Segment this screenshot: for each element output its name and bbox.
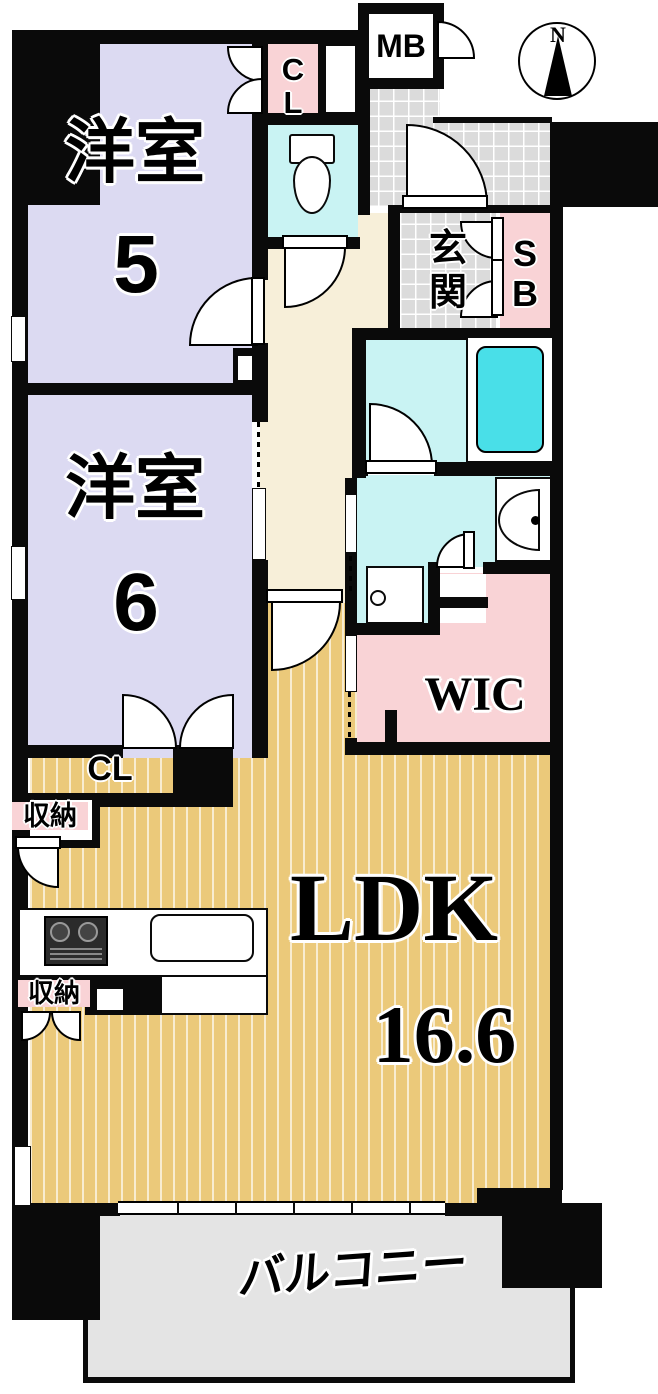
floor-plan: N 洋室 5 洋室 6 LDK 16.6 バルコニー 玄関 SB CL CL M… [0, 0, 658, 1394]
door-arc-closet-top-b [228, 79, 262, 113]
meter-box-label: MB [372, 28, 430, 65]
room6-name-label: 洋室 [50, 452, 220, 526]
door-arc-entry [407, 125, 487, 205]
door-leaf-ldk [267, 590, 342, 602]
door-arc-storage2-b [52, 1012, 80, 1040]
storage2-label: 収納 [18, 980, 90, 1007]
door-arc-meter-box [438, 22, 474, 58]
door-leaf-room5 [252, 278, 264, 344]
closet-mid-label: CL [78, 752, 142, 788]
storage1-label: 収納 [12, 802, 88, 830]
genkan-label: 玄関 [426, 228, 470, 315]
door-arc-storage1 [18, 847, 58, 887]
door-leaf-toilet [283, 236, 347, 248]
door-swings [0, 0, 658, 1394]
room5-name-label: 洋室 [50, 116, 220, 190]
ldk-size-label: 16.6 [352, 992, 537, 1078]
closet-top-label: CL [278, 54, 308, 119]
ldk-name-label: LDK [288, 858, 500, 959]
door-leaf-bathroom [366, 461, 436, 473]
door-leaf-shoebox [492, 260, 503, 315]
door-arc-closet-top-a [228, 47, 262, 81]
door-arc-room5 [190, 278, 257, 345]
door-arc-storage2-a [22, 1012, 50, 1040]
room6-size-label: 6 [98, 560, 174, 646]
compass: N [518, 22, 596, 100]
shoe-box-label: SB [508, 234, 542, 313]
door-leaf-wic [464, 532, 474, 568]
room5-size-label: 5 [98, 222, 174, 308]
door-leaf-storage1 [16, 837, 60, 848]
wic-label: WIC [398, 670, 552, 720]
door-arc-closet-mid-b [180, 695, 233, 748]
door-arc-bathroom [370, 404, 432, 466]
door-leaf-shoebox [492, 218, 503, 260]
compass-north-label: N [548, 24, 568, 46]
door-arc-closet-mid-a [123, 695, 176, 748]
door-arc-toilet [285, 247, 345, 307]
door-leaf-entry [403, 196, 487, 208]
door-arc-ldk [272, 602, 340, 670]
